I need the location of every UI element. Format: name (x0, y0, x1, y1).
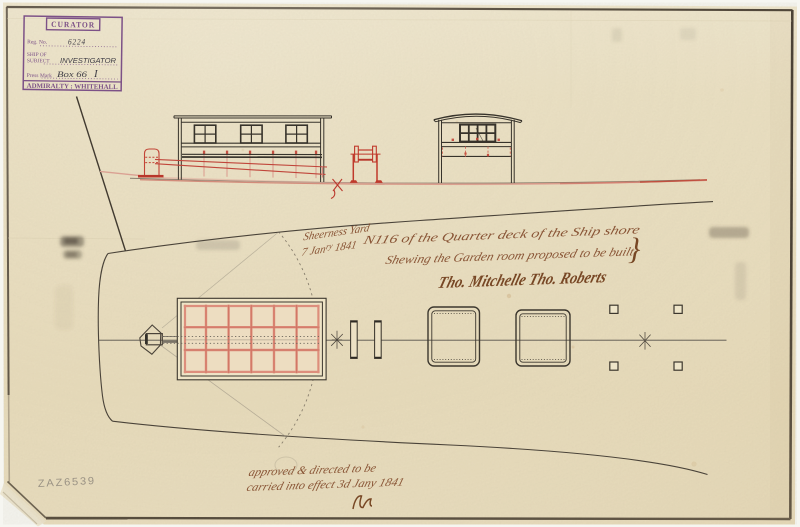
svg-text:Reg. No.: Reg. No. (27, 39, 48, 45)
svg-text:6224: 6224 (68, 37, 86, 47)
svg-text:}: } (628, 231, 641, 266)
svg-text:Box 66: Box 66 (57, 69, 88, 79)
svg-text:CURATOR: CURATOR (51, 20, 95, 30)
svg-text:INVESTIGATOR: INVESTIGATOR (60, 56, 117, 65)
svg-text:SUBJECT: SUBJECT (27, 58, 51, 64)
svg-text:ADMIRALTY : WHITEHALL: ADMIRALTY : WHITEHALL (27, 83, 119, 91)
svg-text:Press Mark: Press Mark (27, 73, 53, 79)
svg-text:SHIP OF: SHIP OF (27, 52, 47, 58)
